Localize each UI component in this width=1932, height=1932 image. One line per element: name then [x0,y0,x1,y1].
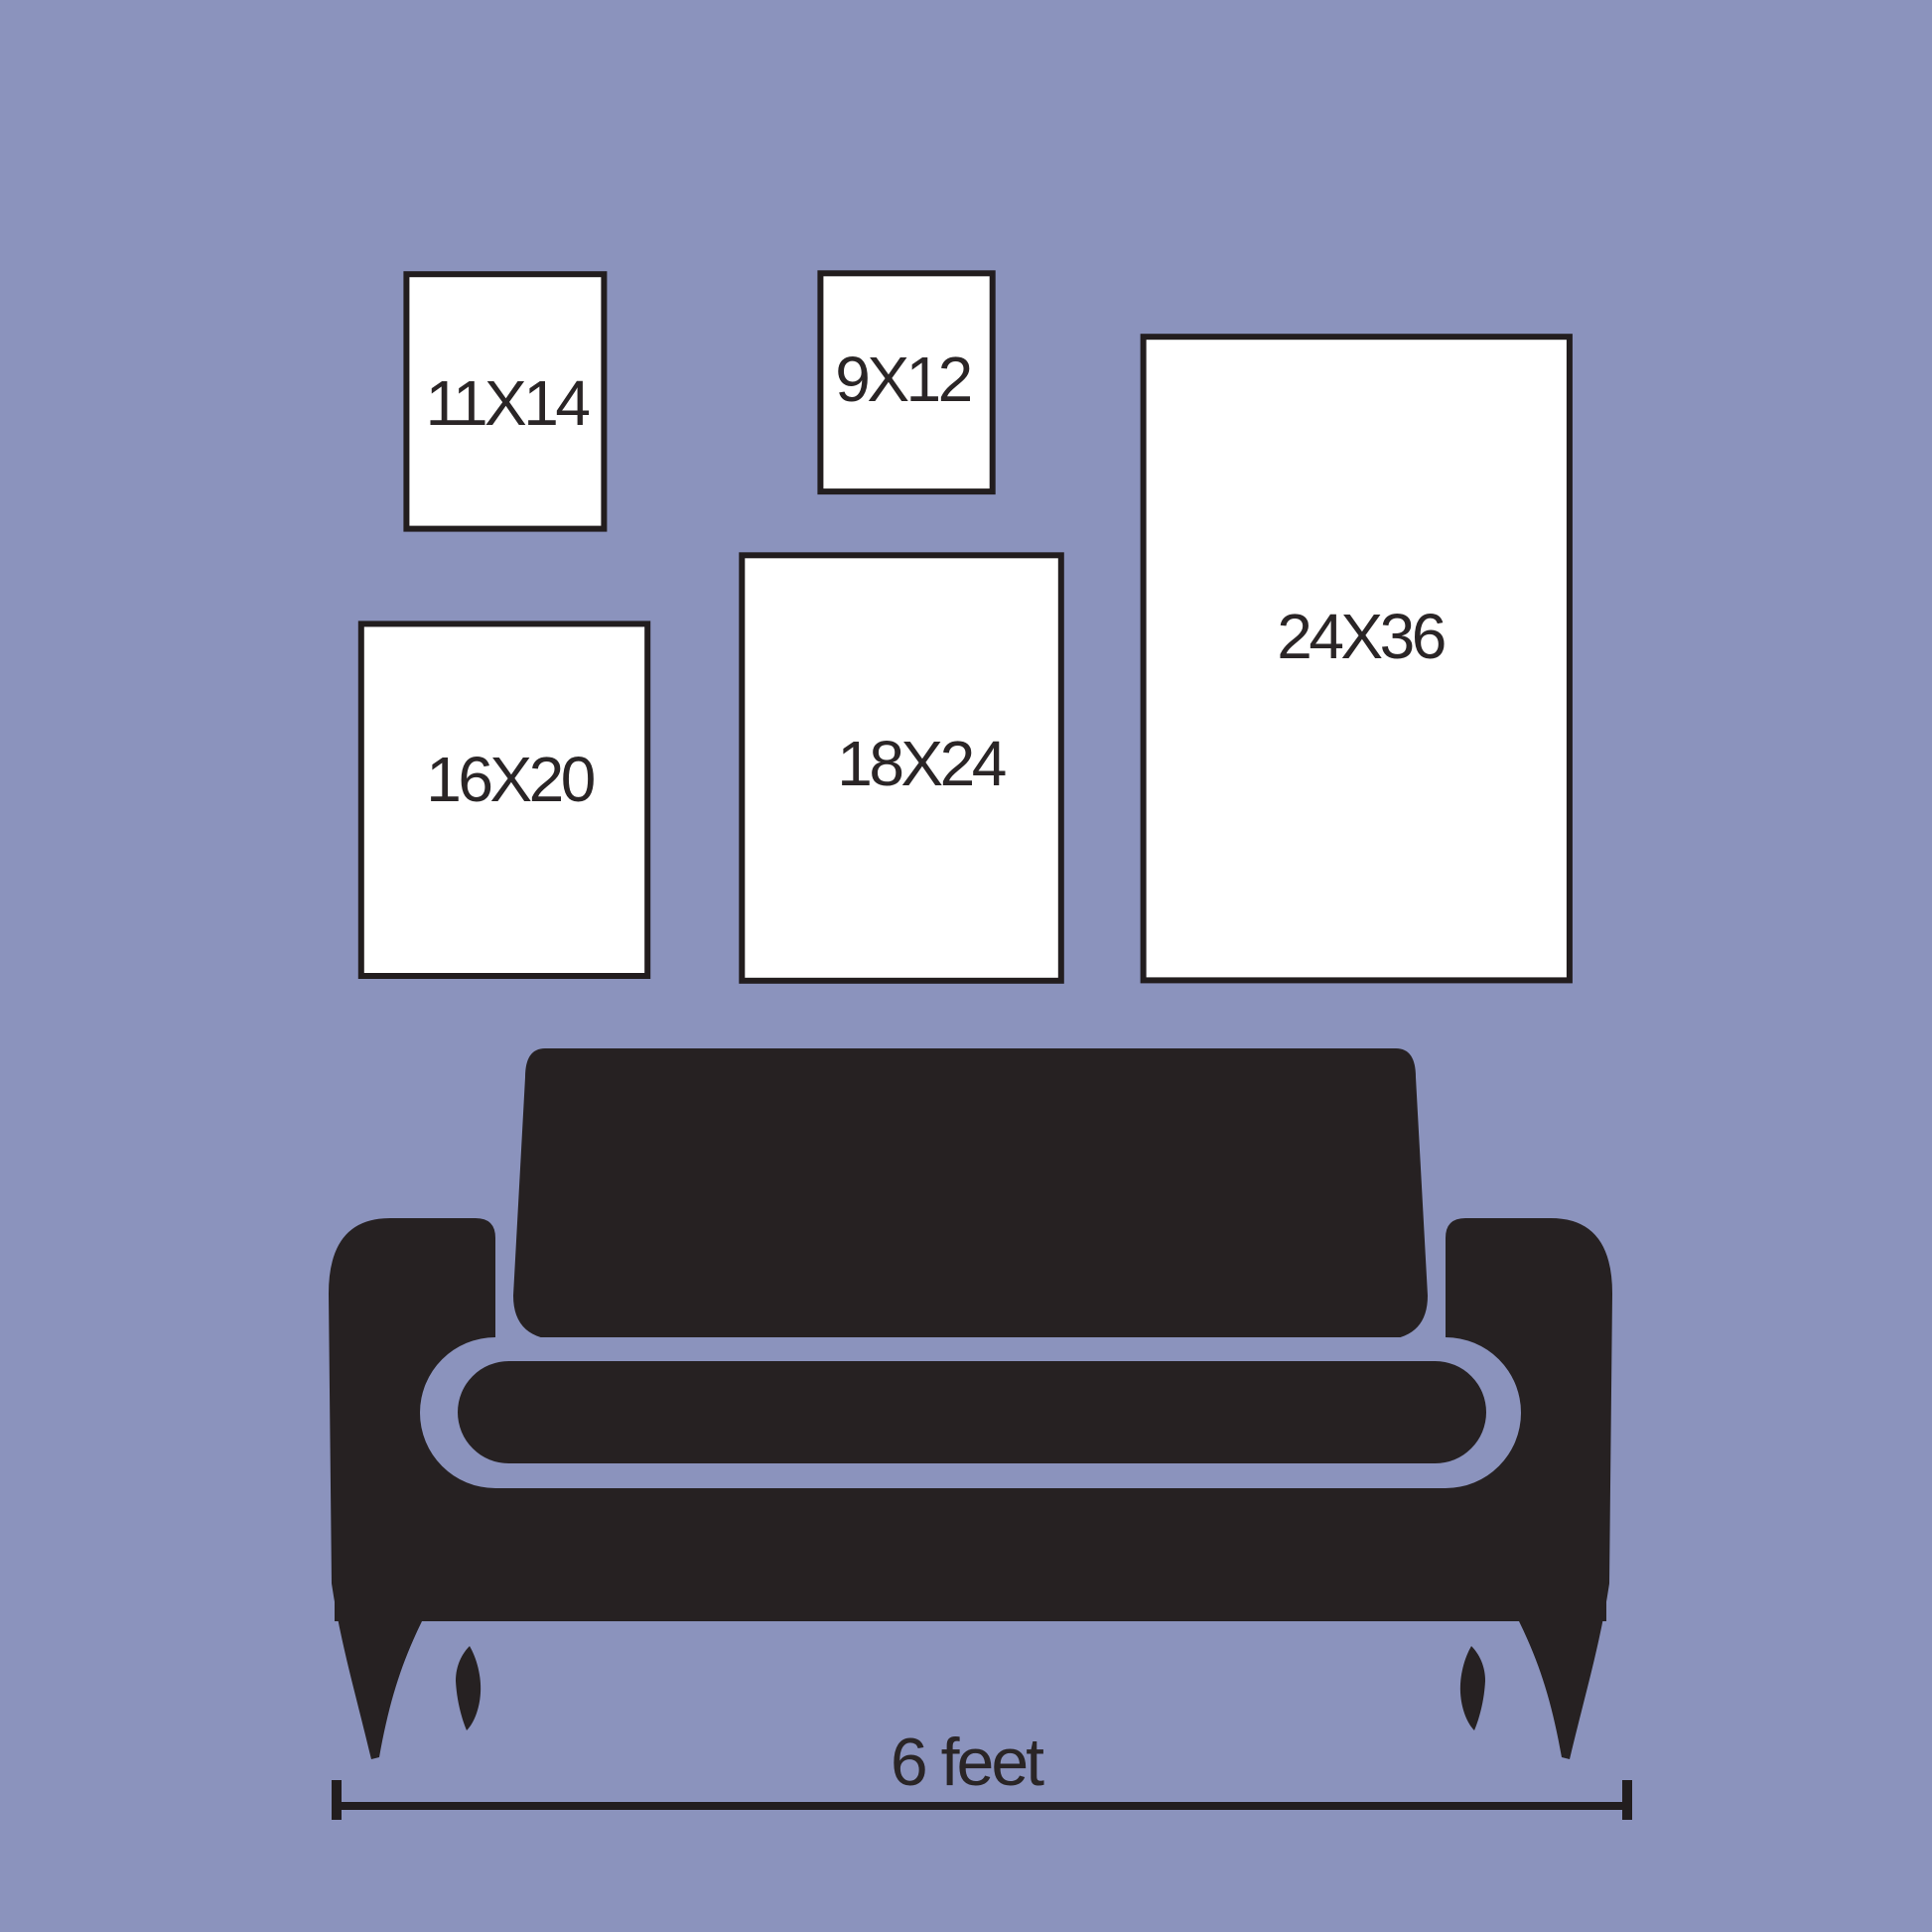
svg-text:16X20: 16X20 [426,744,594,815]
svg-text:24X36: 24X36 [1277,601,1444,672]
svg-text:9X12: 9X12 [835,344,970,415]
svg-text:18X24: 18X24 [837,728,1005,799]
svg-text:11X14: 11X14 [426,367,590,439]
svg-text:6 feet: 6 feet [891,1725,1044,1800]
